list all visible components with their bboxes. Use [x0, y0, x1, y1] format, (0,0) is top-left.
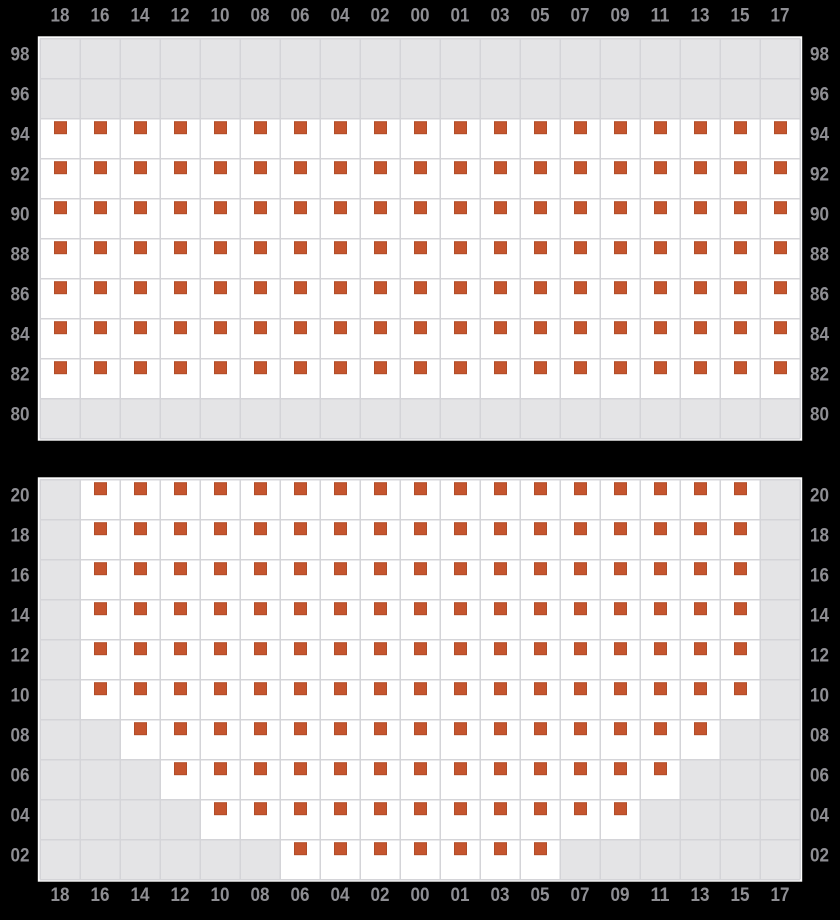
- svg-text:11: 11: [651, 884, 670, 906]
- svg-text:92: 92: [810, 163, 829, 185]
- svg-text:02: 02: [371, 5, 390, 27]
- svg-text:04: 04: [810, 804, 829, 826]
- svg-text:20: 20: [810, 484, 829, 506]
- svg-text:08: 08: [251, 884, 270, 906]
- svg-text:10: 10: [211, 884, 230, 906]
- svg-text:96: 96: [810, 83, 829, 105]
- svg-text:10: 10: [810, 684, 829, 706]
- svg-text:94: 94: [11, 123, 30, 145]
- svg-text:18: 18: [51, 5, 70, 27]
- svg-text:13: 13: [691, 884, 710, 906]
- svg-text:00: 00: [411, 884, 430, 906]
- svg-text:84: 84: [810, 323, 829, 345]
- svg-text:80: 80: [810, 403, 829, 425]
- svg-text:18: 18: [11, 524, 30, 546]
- svg-text:08: 08: [11, 724, 30, 746]
- svg-text:14: 14: [131, 5, 150, 27]
- svg-text:90: 90: [11, 203, 30, 225]
- svg-text:08: 08: [810, 724, 829, 746]
- svg-text:04: 04: [331, 5, 350, 27]
- svg-text:11: 11: [651, 5, 670, 27]
- svg-text:88: 88: [11, 243, 30, 265]
- svg-text:05: 05: [531, 5, 550, 27]
- svg-text:12: 12: [171, 884, 190, 906]
- svg-text:90: 90: [810, 203, 829, 225]
- svg-text:98: 98: [810, 43, 829, 65]
- svg-text:01: 01: [451, 5, 470, 27]
- svg-text:12: 12: [171, 5, 190, 27]
- svg-text:06: 06: [291, 884, 310, 906]
- svg-text:00: 00: [411, 5, 430, 27]
- svg-text:10: 10: [11, 684, 30, 706]
- svg-text:88: 88: [810, 243, 829, 265]
- svg-text:18: 18: [51, 884, 70, 906]
- svg-text:80: 80: [11, 403, 30, 425]
- svg-text:05: 05: [531, 884, 550, 906]
- svg-text:16: 16: [11, 564, 30, 586]
- svg-text:13: 13: [691, 5, 710, 27]
- svg-text:86: 86: [11, 283, 30, 305]
- svg-text:16: 16: [810, 564, 829, 586]
- svg-text:02: 02: [11, 844, 30, 866]
- svg-text:92: 92: [11, 163, 30, 185]
- svg-text:06: 06: [11, 764, 30, 786]
- svg-text:17: 17: [771, 5, 790, 27]
- svg-text:03: 03: [491, 5, 510, 27]
- svg-text:18: 18: [810, 524, 829, 546]
- svg-text:06: 06: [810, 764, 829, 786]
- svg-text:14: 14: [131, 884, 150, 906]
- svg-text:09: 09: [611, 5, 630, 27]
- svg-text:12: 12: [810, 644, 829, 666]
- svg-text:06: 06: [291, 5, 310, 27]
- svg-text:04: 04: [11, 804, 30, 826]
- svg-text:01: 01: [451, 884, 470, 906]
- svg-text:86: 86: [810, 283, 829, 305]
- svg-text:14: 14: [11, 604, 30, 626]
- svg-text:12: 12: [11, 644, 30, 666]
- svg-text:02: 02: [371, 884, 390, 906]
- svg-text:96: 96: [11, 83, 30, 105]
- svg-text:82: 82: [810, 363, 829, 385]
- svg-text:16: 16: [91, 884, 110, 906]
- svg-text:94: 94: [810, 123, 829, 145]
- svg-text:02: 02: [810, 844, 829, 866]
- svg-text:14: 14: [810, 604, 829, 626]
- svg-text:20: 20: [11, 484, 30, 506]
- svg-text:17: 17: [771, 884, 790, 906]
- svg-text:07: 07: [571, 884, 590, 906]
- svg-text:04: 04: [331, 884, 350, 906]
- svg-text:84: 84: [11, 323, 30, 345]
- svg-text:09: 09: [611, 884, 630, 906]
- svg-text:08: 08: [251, 5, 270, 27]
- svg-text:07: 07: [571, 5, 590, 27]
- svg-text:03: 03: [491, 884, 510, 906]
- svg-text:82: 82: [11, 363, 30, 385]
- svg-text:15: 15: [731, 5, 750, 27]
- svg-text:15: 15: [731, 884, 750, 906]
- svg-text:98: 98: [11, 43, 30, 65]
- svg-text:10: 10: [211, 5, 230, 27]
- svg-text:16: 16: [91, 5, 110, 27]
